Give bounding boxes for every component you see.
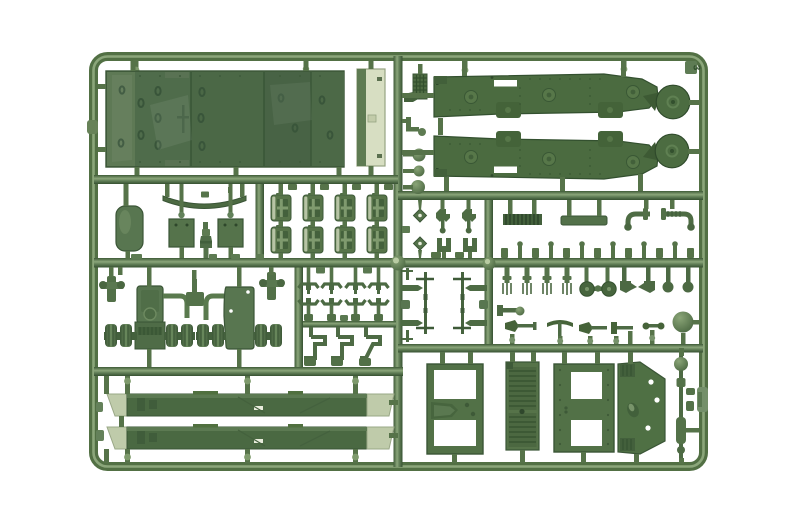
svg-text:3: 3 bbox=[691, 65, 702, 71]
